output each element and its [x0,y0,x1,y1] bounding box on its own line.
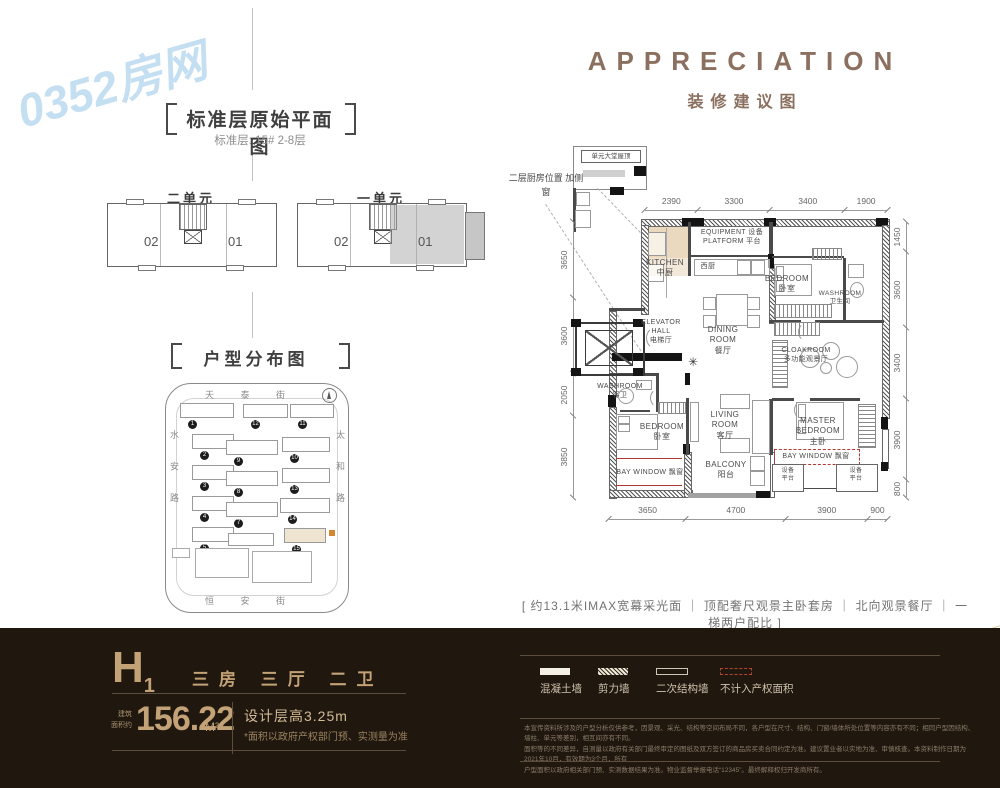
disclaimer-line: 户型面积以政府相关部门预、实测数据结果为准。物业监督举报电话“12345”。最终… [524,766,976,776]
disclaimer: 本宣传资料所涉及的户型分析仅供参考，因景观、采光、结构等空间布局不同，各户型在尺… [524,724,976,776]
wall-washroom-west [843,258,846,320]
room-label-line: BEDROOM [638,422,686,432]
balcony-notch [416,265,434,271]
dimension-value: 3600 [560,298,576,373]
wall-cloakroom-south [772,398,794,401]
unit1-plan: 02 01 [297,203,467,267]
room-label-line: 平台 [844,476,868,484]
building-number-badge: 4 [200,513,209,522]
building-outline [226,471,278,486]
room-label-line: 客卫 [592,391,648,400]
building-outline [282,437,330,452]
amenity-block [195,548,249,578]
room-label-line: BAY WINDOW 飘窗 [780,452,852,461]
dimension-value: 2390 [645,196,698,211]
dimension-value: 3900 [786,505,868,520]
lounge-chair [836,356,858,378]
room-label-line: 卧室 [762,284,812,294]
room-label-line: WASHROOM [592,382,648,391]
building-number-badge: 11 [298,420,307,429]
room-label-line: 中厨 [642,268,688,278]
building-outline [226,440,278,455]
wall-bedroom2-east [686,398,689,455]
building-number-badge: 2 [200,451,209,460]
dimension-value: 2050 [560,374,576,417]
room-label-living: LIVING ROOM 客厅 [698,410,752,441]
legend-label: 二次结构墙 [656,681,726,696]
appliance [751,260,765,275]
room-label-line: 卧室 [638,432,686,442]
room-label-washroom-north: WASHROOM 卫生间 [818,290,862,307]
unit1-flat-01: 01 [418,234,432,249]
street-bottom: 恒 安 街 [205,594,297,607]
chair [747,297,760,310]
washbasin [848,264,864,278]
appliance [575,210,591,228]
room-label-line: 客厅 [698,431,752,441]
dim-top: 2390330034001900 [645,196,887,211]
room-label-line: ELEVATOR [640,318,682,327]
dimension-value: 3600 [893,252,909,327]
site-building-10: 10 [282,437,330,463]
dimension-value: 1450 [893,222,909,252]
room-label-bay-window-left: BAY WINDOW 飘窗 [614,468,686,477]
building-outline [280,498,330,513]
wall [571,319,581,327]
floorplan-page: 0352房网 0352房网 0352房网 标准层原始平面图 标准层: 15# 2… [0,0,1000,788]
stove [648,232,666,256]
bracket-right [339,343,350,369]
bracket-left [166,103,177,135]
area-value: 156.22 [136,700,234,739]
room-label-line: 卫生间 [818,298,862,306]
area-note: *面积以政府产权部门预、实测量为准 [244,728,408,743]
chair [703,297,716,310]
legend-label: 不计入产权面积 [720,681,820,696]
pillow [618,424,630,432]
dimension-value: 800 [893,480,909,497]
room-label-washroom-guest: WASHROOM 客卫 [592,382,648,400]
balcony-notch [238,199,256,205]
wall [610,187,624,195]
unit-layout: 三房 三厅 二卫 [192,665,383,690]
site-building-11: 11 [290,404,334,429]
building-outline [226,502,278,517]
divider [520,718,940,719]
wall [634,166,646,176]
room-label-bay-window-right: BAY WINDOW 飘窗 [780,452,852,461]
room-label-bedroom-north: BEDROOM 卧室 [762,274,812,295]
divider-line [252,8,253,90]
wardrobe [858,404,876,448]
room-label-line: 餐厅 [696,346,750,356]
room-label-equip-small: 设备 平台 [776,468,800,484]
unit-code-letter: H [112,643,144,692]
legend-excluded-swatch [720,668,752,675]
site-building-12: 12 [243,404,288,429]
building-number-badge: 1 [188,420,197,429]
site-building-13: 13 [282,468,330,494]
highlighted-unit-annex [465,212,485,260]
room-label-line: BALCONY [704,460,748,470]
wardrobe [812,248,842,260]
room-label-kitchen: KITCHEN 中厨 [642,258,688,279]
unit-code: H1 [112,646,155,696]
room-label-bedroom-second: BEDROOM 卧室 [638,422,686,443]
room-label-line: 阳台 [704,470,748,480]
divider-line [252,292,253,338]
site-map-title: 户型分布图 [181,345,331,370]
dim-right: 1450360034003900800 [893,222,909,497]
dimension-value: 3400 [770,196,845,211]
building-number-badge: 7 [234,519,243,528]
building-number-badge: 14 [288,515,297,524]
building-outline [243,404,288,418]
room-label-line: 平台 [776,476,800,484]
partition-line [350,204,351,266]
balcony-notch [316,199,334,205]
wall [846,320,884,323]
dining-table [716,294,748,326]
room-label-line: DINING ROOM [696,325,750,346]
wall-cloakroom-south [810,398,860,401]
area-prefix-line: 建筑 [110,710,132,721]
balcony-notch [328,265,346,271]
room-label-line: HALL [640,327,682,336]
building-number-badge: 3 [200,482,209,491]
washer [750,471,765,486]
appliance [737,260,751,275]
divider [112,693,406,694]
legend-shear-swatch [598,668,628,675]
room-label-line: PLATFORM 平台 [690,237,774,246]
wall [881,462,888,471]
appreciation-subtitle: 装修建议图 [545,88,945,112]
appreciation-title: APPRECIATION [545,46,945,77]
partition-line [226,204,227,266]
balcony-notch [126,199,144,205]
site-building-7: 7 [226,502,278,528]
room-label-line: 主卧 [784,437,852,447]
elevator-core [184,230,202,244]
partition-line [160,204,161,266]
building-outline [282,468,330,483]
building-outline [284,528,326,543]
room-label-line: 电梯厅 [640,336,682,345]
room-label-equip-small: 设备 平台 [844,468,868,484]
balcony-notch [138,265,156,271]
disclaimer-line: 面积等的不同差异，自测量以政府有关部门最终审定的图纸及双方签订的商品房买卖合同约… [524,745,976,766]
coffee-table [720,394,750,409]
bracket-right [345,103,356,135]
building-number-badge: 10 [290,454,299,463]
dimension-value: 1900 [845,196,887,211]
room-label-master: MASTER BEDROOM 主卧 [784,416,852,447]
area-unit: M² [205,720,219,734]
pillow [618,416,630,424]
building-outline [290,404,334,418]
wardrobe [658,402,686,414]
room-label-line: KITCHEN [642,258,688,268]
wall-bay-bottom [609,490,693,498]
unit2-flat-02: 02 [144,234,158,249]
lobby-roof-label: 单元大堂屋顶 [581,150,641,163]
highlight-marker [329,530,335,536]
room-label-line: BAY WINDOW 飘窗 [614,468,686,477]
street-left: 水 安 路 [168,430,181,512]
site-building-14: 14 [280,498,330,524]
divider [520,655,940,656]
lobby-roof-slab [583,170,625,177]
room-label-equipment: EQUIPMENT 设备 PLATFORM 平台 [690,228,774,246]
dimension-value: 3850 [560,416,576,497]
legend-concrete-swatch [540,668,570,675]
room-label-elevator-hall: ELEVATOR HALL 电梯厅 [640,318,682,345]
footer-bar: H1 三房 三厅 二卫 建筑 面积约 156.22 M² 设计层高3.25m *… [0,628,1000,788]
legend-secondary-swatch [656,668,688,675]
room-label-cloakroom: CLOAKROOM 多功能观景厅 [775,346,837,364]
wall [685,373,690,385]
room-label-line: BEDROOM [762,274,812,284]
street-top: 天 泰 街 [205,388,297,401]
room-label-line: MASTER BEDROOM [784,416,852,437]
building-number-badge: 8 [234,488,243,497]
area-prefix: 建筑 面积约 [110,710,132,731]
amenity-block [252,551,312,583]
site-building-1: 1 [180,403,234,429]
room-label-line: 设备 [844,468,868,476]
unit2-flat-01: 01 [228,234,242,249]
building-outline [228,533,274,546]
dimension-value: 4700 [686,505,785,520]
bay-window-line [616,458,682,459]
dimension-value: 3900 [893,399,909,481]
divider-vertical [232,702,233,754]
site-building-9: 9 [226,440,278,466]
stair-core [179,204,207,230]
room-label-line: 设备 [776,468,800,476]
room-label-line: EQUIPMENT 设备 [690,228,774,237]
building-number-badge: 13 [290,485,299,494]
dim-left: 3650360020503850 [560,222,576,497]
room-label-line: CLOAKROOM [775,346,837,355]
divider [112,750,406,751]
bay-window-line [616,485,682,486]
room-label-balcony: BALCONY 阳台 [704,460,748,481]
dimension-value: 3300 [698,196,771,211]
building-number-badge: 9 [234,457,243,466]
dim-bottom: 365047003900900 [609,505,887,520]
disclaimer-line: 本宣传资料所涉及的户型分析仅供参考，因景观、采光、结构等空间布局不同，各户型在尺… [524,724,976,745]
north-arrow-icon [322,388,337,403]
wall [881,417,888,429]
street-right: 太 和 路 [334,430,347,512]
original-plan-subtitle: 标准层: 15# 2-8层 [175,132,345,148]
dimension-value: 3650 [560,222,576,298]
floor-height: 设计层高3.25m [244,706,348,726]
divider [520,761,940,762]
wall [571,368,581,376]
room-label-line: 多功能观景厅 [775,355,837,364]
building-outline [180,403,234,418]
wall [620,410,650,412]
balcony-notch [226,265,244,271]
legend-secondary-wall: 二次结构墙 [656,668,726,696]
kitchen-note-line1: 二层厨房位置 [509,173,563,183]
building-number-badge: 12 [251,420,260,429]
selling-points: [ 约13.1米IMAX宽幕采光面 ｜ 顶配奢尺观景主卧套房 ｜ 北向观景餐厅 … [520,597,970,631]
site-building-8: 8 [226,471,278,497]
room-label-west-kitchen: 西厨 [697,262,719,271]
wall [633,368,643,376]
wall-equipment-south [690,255,770,257]
gate-block [172,548,190,558]
unit1-flat-02: 02 [334,234,348,249]
wall [804,488,836,489]
dimension-value: 3650 [609,505,686,520]
elevator-cab [585,330,633,366]
entry-plant-icon: ✳ [688,355,698,369]
wall [682,218,704,226]
kitchen-note: 二层厨房位置 加侧窗 [505,172,587,199]
room-label-dining: DINING ROOM 餐厅 [696,325,750,356]
washer [750,456,765,471]
dimension-value: 900 [868,505,887,520]
sofa [752,400,770,454]
legend-excluded-area: 不计入产权面积 [720,668,820,696]
room-label-line: LIVING ROOM [698,410,752,431]
dimension-value: 3400 [893,328,909,399]
unit2-plan: 02 01 [107,203,277,267]
area-prefix-line: 面积约 [110,721,132,732]
room-label-line: 西厨 [697,262,719,271]
cloakroom-cabinet [774,322,820,336]
